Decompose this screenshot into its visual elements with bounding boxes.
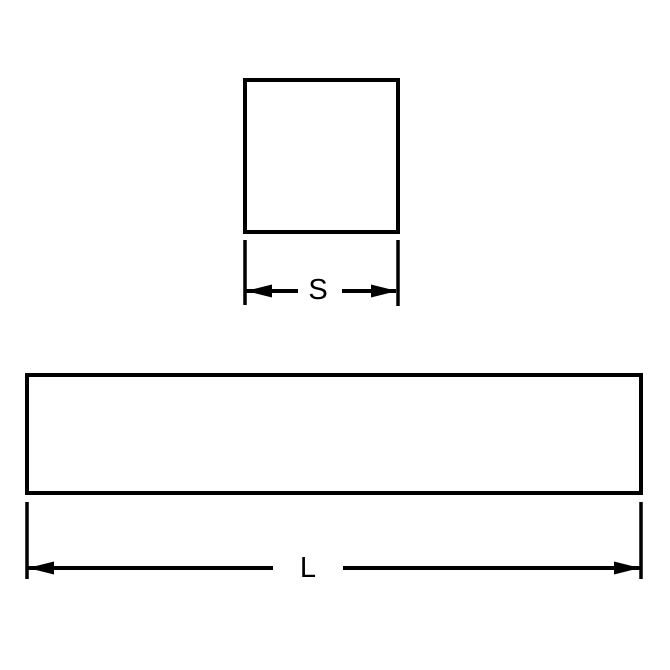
- l-arrowhead-right: [614, 562, 640, 575]
- square-outline: [245, 80, 398, 232]
- l-arrowhead-left: [28, 562, 54, 575]
- bar-side-profile-view: L: [27, 375, 641, 584]
- s-arrowhead-left: [246, 285, 272, 298]
- bar-outline: [27, 375, 641, 493]
- s-arrowhead-right: [371, 285, 397, 298]
- s-dimension-label: S: [308, 274, 327, 306]
- diagram-canvas: S L: [0, 0, 670, 670]
- technical-drawing: S L: [0, 0, 670, 670]
- square-cross-section-view: S: [245, 80, 398, 306]
- l-dimension-label: L: [300, 552, 316, 584]
